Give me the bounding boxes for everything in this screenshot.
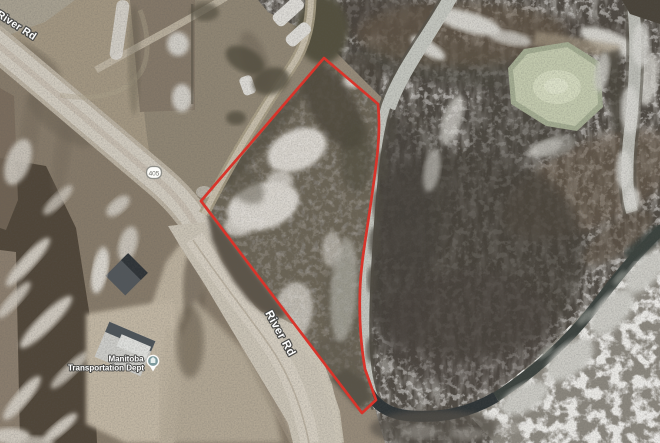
svg-text:Manitoba: Manitoba [108, 355, 144, 364]
svg-text:405: 405 [149, 170, 160, 177]
svg-text:Transportation Dept: Transportation Dept [68, 364, 144, 373]
